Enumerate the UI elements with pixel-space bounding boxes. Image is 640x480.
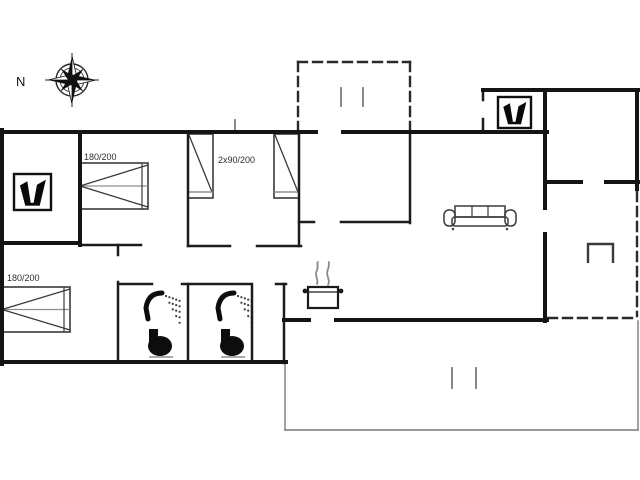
shower-spray (244, 308, 246, 310)
shower-spray (168, 296, 170, 298)
single-bed-1-line (189, 135, 212, 192)
shower-spray (175, 304, 177, 306)
sofa-seat (452, 217, 508, 226)
north-label: N (16, 74, 25, 89)
floorplan-page: 180/2002x90/200180/200N (0, 0, 640, 480)
shower-spray (244, 297, 246, 299)
pot-handle (339, 289, 344, 294)
shower-spray (247, 310, 249, 312)
shower-spray (237, 295, 239, 297)
double-bed-2-line (2, 289, 70, 310)
cooking-pot-icon (308, 287, 338, 308)
compass-center (70, 78, 74, 82)
shower-spray (172, 297, 174, 299)
shower-spray (165, 295, 167, 297)
floorplan-drawing: 180/2002x90/200180/200N (0, 0, 640, 480)
shower-icon (218, 293, 234, 319)
shower-spray (179, 322, 181, 324)
shower-spray (175, 299, 177, 301)
sofa-foot (506, 228, 509, 231)
flame-base (508, 122, 521, 124)
shower-spray (175, 315, 177, 317)
shower-spray (179, 311, 181, 313)
shower-spray (168, 302, 170, 304)
flame-base (25, 203, 40, 206)
toilet-icon (220, 336, 244, 356)
shower-spray (240, 296, 242, 298)
pot-handle (303, 289, 308, 294)
shower-spray (175, 310, 177, 312)
single-bed-2 (274, 134, 299, 198)
bed-size-label: 180/200 (7, 273, 40, 283)
shower-icon (146, 293, 162, 319)
shower-spray (179, 300, 181, 302)
toilet-icon (148, 336, 172, 356)
shower-spray (172, 303, 174, 305)
shower-spray (247, 299, 249, 301)
sofa-foot (452, 228, 455, 231)
double-bed-1-line (80, 186, 148, 207)
bed-size-label: 2x90/200 (218, 155, 255, 165)
shower-spray (179, 305, 181, 307)
single-bed-2-line (275, 135, 298, 192)
fireplace-icon (588, 244, 613, 263)
single-bed-1 (188, 134, 213, 198)
shower-spray (247, 315, 249, 317)
sofa-icon (455, 206, 505, 217)
steam-icon (316, 262, 318, 284)
shower-spray (179, 316, 181, 318)
shower-spray (172, 308, 174, 310)
steam-icon (327, 262, 329, 285)
shower-spray (240, 302, 242, 304)
shower-spray (244, 303, 246, 305)
shower-spray (247, 304, 249, 306)
bed-size-label: 180/200 (84, 152, 117, 162)
double-bed-1-line (80, 165, 148, 186)
double-bed-2-line (2, 310, 70, 331)
